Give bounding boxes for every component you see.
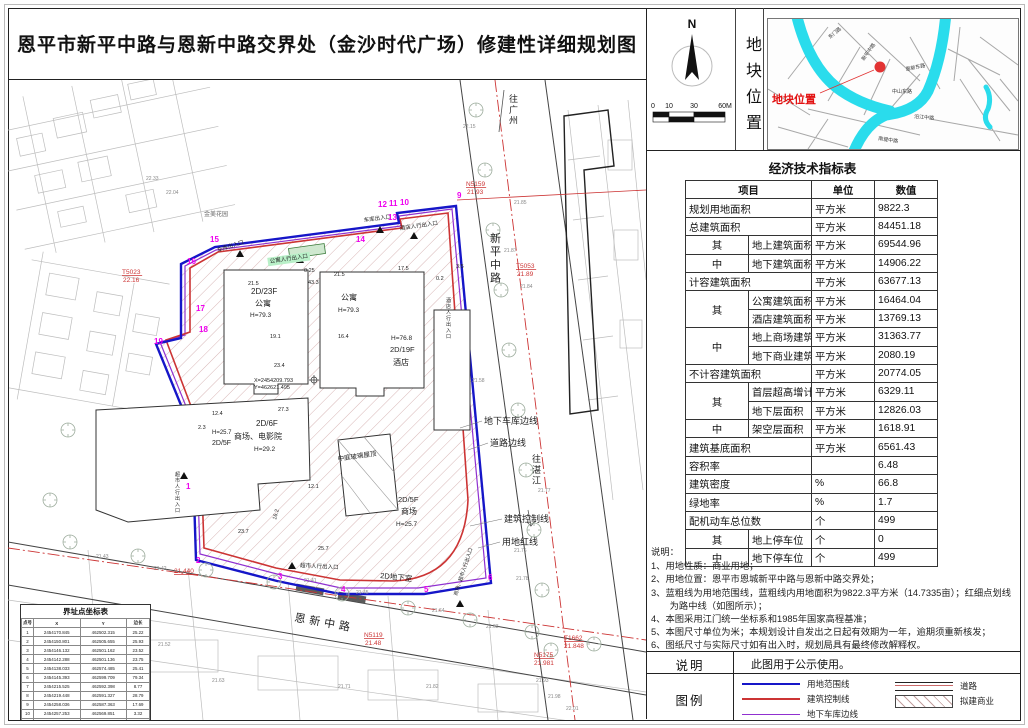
note-item: 为路中线（如图所示）； bbox=[651, 600, 1017, 613]
svg-text:10: 10 bbox=[665, 103, 673, 110]
inset-road-label: 南堤中路 bbox=[878, 135, 899, 145]
legend-item: 地下车库边线 bbox=[742, 707, 892, 721]
shuoming-label: 说明 bbox=[647, 655, 733, 674]
bt-row: 22454150.801462505.65525.93 bbox=[22, 637, 150, 646]
map-label: 建筑控制线 bbox=[504, 513, 549, 524]
map-label: 43.3 bbox=[308, 280, 319, 286]
legend-item-label: 地下车库边线 bbox=[807, 708, 858, 720]
map-label: 21.48 bbox=[365, 640, 382, 647]
map-label: 17.5 bbox=[398, 266, 409, 272]
map-label: 2D/5F bbox=[212, 440, 231, 447]
bt-row: 82454219.448462591.32728.79 bbox=[22, 691, 150, 700]
indicator-row: 计容建筑面积平方米63677.13 bbox=[686, 272, 938, 290]
indicator-row: 其公寓建筑面积平方米16464.04 bbox=[686, 291, 938, 309]
boundary-point: 11 bbox=[389, 199, 398, 208]
legend-line-items: 用地范围线建筑控制线地下车库边线 bbox=[742, 677, 892, 722]
map-label: N5119 bbox=[364, 632, 383, 639]
map-label: 地下车库边线 bbox=[484, 415, 538, 426]
boundary-table-title: 界址点坐标表 bbox=[21, 605, 150, 618]
indicator-panel: 经济技术指标表 项目单位数值 规划用地面积平方米9822.3总建筑面积平方米84… bbox=[685, 158, 940, 567]
note-item: 4、本图采用江门统一坐标系和1985年国家高程基准； bbox=[651, 613, 1017, 626]
boundary-point: 13 bbox=[388, 213, 397, 222]
bt-row: 12454170.845462502.31525.22 bbox=[22, 628, 150, 637]
boundary-point: 14 bbox=[356, 235, 365, 244]
notes-block: 说明： 1、用地性质：商业用地；2、用地位置：恩平市恩城新平中路与恩新中路交界处… bbox=[651, 546, 1017, 653]
bt-row: 42454142.288462501.13623.75 bbox=[22, 655, 150, 664]
tree-icon bbox=[63, 535, 77, 549]
indicator-row: 中地下建筑面积平方米14906.22 bbox=[686, 254, 938, 272]
tree-icon bbox=[511, 403, 525, 417]
map-label: T5023 bbox=[122, 269, 141, 276]
bt-row: 32454146.132462501.16223.52 bbox=[22, 646, 150, 655]
map-label: H=29.2 bbox=[254, 446, 276, 453]
map-label: 21.848 bbox=[564, 643, 584, 650]
indicator-row: 规划用地面积平方米9822.3 bbox=[686, 199, 938, 217]
svg-text:30: 30 bbox=[690, 103, 698, 110]
map-label: 公寓 bbox=[255, 298, 271, 308]
boundary-point: 5 bbox=[424, 585, 429, 594]
bt-col-header: 点号 bbox=[22, 619, 34, 628]
indicator-row: 配机动车总位数个499 bbox=[686, 512, 938, 530]
indicator-table-title: 经济技术指标表 bbox=[685, 158, 940, 177]
indicator-row: 建筑基底面积平方米6561.43 bbox=[686, 438, 938, 456]
map-label: 21.58 bbox=[472, 378, 485, 384]
tree-icon bbox=[401, 601, 415, 615]
map-label: N5175 bbox=[534, 652, 554, 659]
indicator-row: 其地上建筑面积平方米69544.96 bbox=[686, 236, 938, 254]
map-label: 23.4 bbox=[274, 363, 285, 369]
boundary-point: 15 bbox=[210, 235, 219, 244]
indicator-row: 绿地率%1.7 bbox=[686, 493, 938, 511]
map-label: 0.25 bbox=[304, 268, 315, 274]
bt-col-header: Y bbox=[80, 619, 127, 628]
boundary-point: 18 bbox=[199, 325, 208, 334]
map-label: 25.7 bbox=[318, 546, 329, 552]
page-title: 恩平市新平中路与恩新中路交界处（金沙时代广场）修建性详细规划图 bbox=[8, 8, 646, 80]
plot-location-dot bbox=[875, 62, 886, 73]
shuoming-text: 此图用于公示使用。 bbox=[751, 656, 850, 672]
map-label: 12.1 bbox=[308, 484, 319, 490]
boundary-point: 12 bbox=[378, 200, 387, 209]
map-label: 21.42 bbox=[154, 566, 167, 572]
map-label: 21.84 bbox=[520, 284, 533, 290]
legend-box: 说明 此图用于公示使用。 图例 用地范围线建筑控制线地下车库边线 道路拟建商业 bbox=[647, 651, 1020, 720]
legend-item-label: 道路 bbox=[960, 680, 977, 692]
note-item: 1、用地性质：商业用地； bbox=[651, 560, 1017, 573]
map-label: 公寓 bbox=[341, 292, 357, 302]
tree-icon bbox=[478, 163, 492, 177]
map-label: 12.4 bbox=[212, 411, 223, 417]
col-unit: 单位 bbox=[812, 181, 875, 199]
note-item: 5、本图尺寸单位为米；本规划设计自发出之日起有效期为一年，逾期须重新核发； bbox=[651, 626, 1017, 639]
map-label: 21.5 bbox=[248, 281, 259, 287]
bt-row: 112454256.801462566.2421.78 bbox=[22, 719, 150, 720]
map-label: 2D/23F bbox=[251, 287, 277, 296]
right-panel: N 0103060M 地块位置 地块位置 bbox=[646, 8, 1020, 719]
boundary-point: 17 bbox=[196, 304, 205, 313]
map-label: 22.01 bbox=[566, 706, 579, 712]
map-label: 21.78 bbox=[516, 576, 529, 582]
indicator-row: 容积率6.48 bbox=[686, 456, 938, 474]
legend-line-symbol bbox=[742, 683, 800, 685]
tree-icon bbox=[469, 103, 483, 117]
map-label: 21.85 bbox=[514, 200, 527, 206]
legend-line-symbol bbox=[742, 698, 800, 700]
map-label: T1662 bbox=[564, 635, 583, 642]
tuli-label: 图例 bbox=[647, 690, 733, 709]
inset-road-label: 中山东路 bbox=[892, 88, 912, 95]
neighbor-building-outline bbox=[564, 110, 614, 414]
tree-icon bbox=[535, 583, 549, 597]
legend-item: 建筑控制线 bbox=[742, 692, 892, 706]
road-symbol bbox=[895, 682, 953, 691]
boundary-extension-line bbox=[457, 190, 646, 200]
svg-text:60M: 60M bbox=[718, 103, 732, 110]
map-label: 21.981 bbox=[534, 660, 554, 667]
hatch-symbol bbox=[895, 695, 953, 708]
boundary-point: 9 bbox=[457, 191, 462, 200]
map-label: 2D/5F bbox=[398, 495, 419, 504]
legend-divider bbox=[733, 652, 734, 720]
legend-item: 拟建商业 bbox=[895, 694, 1020, 708]
boundary-coordinate-table: 界址点坐标表 点号XY边长12454170.845462502.31525.22… bbox=[20, 604, 151, 720]
map-label: 新平中路 bbox=[490, 231, 501, 285]
map-label: 3.5 bbox=[456, 264, 464, 270]
bt-row: 52454138.033462574.48525.41 bbox=[22, 664, 150, 673]
col-item: 项目 bbox=[686, 181, 812, 199]
bt-row: 62454145.393462599.70979.34 bbox=[22, 673, 150, 682]
map-label: 21.63 bbox=[212, 678, 225, 684]
legend-item-label: 拟建商业 bbox=[960, 695, 994, 707]
map-label: 0.2 bbox=[436, 276, 444, 282]
map-label: 道路边线 bbox=[490, 437, 526, 448]
indicator-row: 中架空层面积平方米1618.91 bbox=[686, 420, 938, 438]
map-label: 恩新中路 bbox=[293, 610, 355, 634]
plan-sheet: 恩平市新平中路与恩新中路交界处（金沙时代广场）修建性详细规划图 bbox=[0, 0, 1028, 728]
svg-text:0: 0 bbox=[651, 103, 655, 110]
legend-item: 道路 bbox=[895, 679, 1020, 693]
map-label: 用地红线 bbox=[502, 536, 538, 547]
map-label: Y=462621.495 bbox=[254, 385, 290, 391]
tree-icon bbox=[502, 343, 516, 357]
col-value: 数值 bbox=[875, 181, 938, 199]
bt-row: 72454215.525462592.3988.77 bbox=[22, 682, 150, 691]
tree-icon bbox=[494, 283, 508, 297]
north-label: N bbox=[688, 17, 697, 31]
map-label: 22.15 bbox=[463, 124, 476, 130]
plan-map: 2D/23F公寓H=79.3公寓H=79.3H=76.82D/19F酒店2D/6… bbox=[8, 80, 646, 720]
map-label: 21.64 bbox=[432, 608, 445, 614]
location-inset-map: 地块位置 东门路新平中路恩新东路中山东路沿江中路南堤中路 bbox=[767, 18, 1019, 150]
scale-bar: 0103060M bbox=[651, 103, 732, 122]
north-arrow-icon bbox=[685, 34, 699, 80]
map-label: 22.04 bbox=[166, 190, 179, 196]
map-label: 21.87 bbox=[504, 248, 517, 254]
map-label: 22.16 bbox=[123, 277, 140, 284]
tree-icon bbox=[43, 493, 57, 507]
location-strip: N 0103060M 地块位置 地块位置 bbox=[647, 8, 1020, 151]
map-label: 19.1 bbox=[270, 334, 281, 340]
legend-item-label: 建筑控制线 bbox=[807, 693, 850, 705]
map-label: 2.3 bbox=[198, 425, 206, 431]
inset-road-labels: 东门路新平中路恩新东路中山东路沿江中路南堤中路 bbox=[827, 26, 935, 145]
map-label: 21.93 bbox=[536, 678, 549, 684]
boundary-point: 6 bbox=[488, 573, 493, 582]
map-label: N5159 bbox=[466, 181, 486, 188]
map-label: 2D/19F bbox=[390, 345, 415, 354]
indicator-row: 不计容建筑面积平方米20774.05 bbox=[686, 364, 938, 382]
tree-icon bbox=[61, 423, 75, 437]
tree-icon bbox=[587, 637, 601, 651]
map-label: 21.93 bbox=[467, 189, 484, 196]
map-label: 23.7 bbox=[238, 529, 249, 535]
map-label: 21.41 bbox=[304, 578, 317, 584]
map-label: 酒店 bbox=[393, 357, 409, 367]
note-item: 3、蓝粗线为用地范围线，蓝粗线内用地面积为9822.3平方米（14.7335亩）… bbox=[651, 587, 1017, 600]
map-label: 21.89 bbox=[517, 271, 534, 278]
map-label: 商场、电影院 bbox=[234, 431, 282, 441]
map-label: 金美花园 bbox=[204, 210, 228, 218]
bt-col-header: X bbox=[34, 619, 81, 628]
map-label: 21.77 bbox=[538, 488, 551, 494]
tree-icon bbox=[131, 549, 145, 563]
map-label: H=76.8 bbox=[391, 335, 413, 342]
note-item: 2、用地位置：恩平市恩城新平中路与恩新中路交界处； bbox=[651, 573, 1017, 586]
xinping-road-east-edge bbox=[545, 80, 633, 720]
indicator-row: 其首层超高增计面积平方米6329.11 bbox=[686, 383, 938, 401]
bt-col-header: 边长 bbox=[127, 619, 150, 628]
legend-line-symbol bbox=[742, 714, 800, 715]
map-label: 21.5 bbox=[334, 272, 345, 278]
boundary-point: 16 bbox=[187, 257, 196, 266]
map-label: 商场 bbox=[401, 506, 417, 516]
indicator-row: 建筑密度%66.8 bbox=[686, 475, 938, 493]
boundary-point: 10 bbox=[400, 198, 409, 207]
map-label: 21.43 bbox=[96, 554, 109, 560]
map-label: 21.76 bbox=[514, 548, 527, 554]
boundary-point: 3 bbox=[278, 572, 283, 581]
boundary-point: 1 bbox=[186, 482, 191, 491]
map-label: H=25.7 bbox=[212, 430, 232, 436]
map-label: 2D/6F bbox=[256, 419, 278, 428]
map-label: 16.4 bbox=[338, 334, 349, 340]
map-label: T5053 bbox=[516, 263, 535, 270]
indicator-row: 总建筑面积平方米84451.18 bbox=[686, 217, 938, 235]
map-label: 酒店人行出入口 bbox=[446, 297, 451, 340]
map-label: 21.82 bbox=[426, 684, 439, 690]
bt-row: 102454257.253462569.8513.32 bbox=[22, 709, 150, 718]
apartment-tower-b bbox=[320, 272, 424, 396]
map-label: 往广州 bbox=[509, 93, 518, 126]
map-label: 21.52 bbox=[158, 642, 171, 648]
map-label: 往湛江 bbox=[532, 453, 541, 486]
map-label: H=25.7 bbox=[396, 521, 418, 528]
map-label: 22.33 bbox=[146, 176, 159, 182]
hotel-tower bbox=[434, 310, 470, 430]
map-label: 27.3 bbox=[278, 407, 289, 413]
map-label: H=79.3 bbox=[250, 312, 272, 319]
legend-item-label: 用地范围线 bbox=[807, 678, 850, 690]
map-label: 21.45 bbox=[356, 590, 369, 596]
map-label: H=79.3 bbox=[338, 307, 360, 314]
tree-icon bbox=[527, 523, 541, 537]
map-label: 21.98 bbox=[548, 694, 561, 700]
notes-heading: 说明： bbox=[651, 546, 1017, 559]
tree-icon bbox=[519, 463, 533, 477]
bt-row: 92454258.036462587.36317.69 bbox=[22, 700, 150, 709]
inset-road-label: 恩新东路 bbox=[905, 62, 926, 73]
tree-icon bbox=[199, 563, 213, 577]
map-label: 21.71 bbox=[338, 684, 351, 690]
plot-location-vertical-label: 地块位置 bbox=[735, 8, 764, 150]
legend-item: 用地范围线 bbox=[742, 677, 892, 691]
plot-location-marker-label: 地块位置 bbox=[772, 92, 816, 106]
legend-symbol-items: 道路拟建商业 bbox=[895, 679, 1020, 709]
boundary-point: 2 bbox=[196, 556, 201, 565]
indicator-table: 项目单位数值 规划用地面积平方米9822.3总建筑面积平方米84451.18其地… bbox=[685, 180, 938, 567]
map-label: 21.63 bbox=[486, 624, 499, 630]
map-label: 21.440 bbox=[174, 568, 194, 575]
inset-road-label: 沿江中路 bbox=[914, 113, 935, 122]
indicator-row: 中地上商场建筑面积平方米31363.77 bbox=[686, 328, 938, 346]
boundary-point: 4 bbox=[341, 585, 346, 594]
map-label: X=2454209.793 bbox=[254, 378, 293, 384]
north-scale-box: N 0103060M bbox=[647, 8, 735, 150]
inset-road-label: 东门路 bbox=[827, 26, 843, 41]
map-label: 超市人行出入口 bbox=[175, 471, 180, 514]
inset-river bbox=[796, 19, 990, 149]
boundary-point: 19 bbox=[154, 337, 163, 346]
tree-icon bbox=[463, 613, 477, 627]
